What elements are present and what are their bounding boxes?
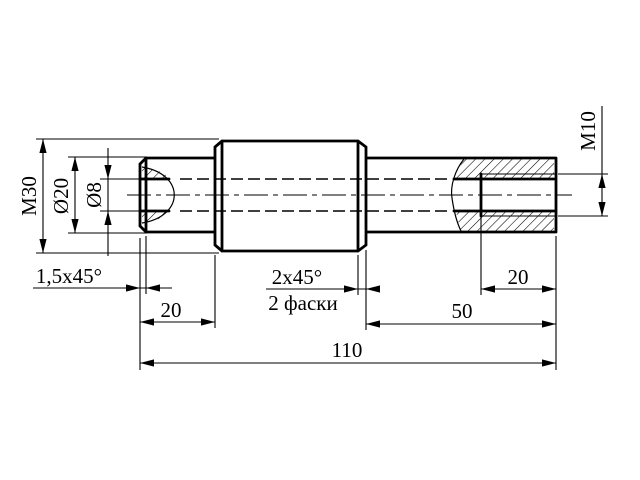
- part-outline: [140, 141, 556, 251]
- arrow-d20-top: [71, 157, 78, 171]
- dim-label-m10: M10: [576, 111, 600, 151]
- arrow-chamfer-left-b: [146, 284, 160, 291]
- dim-label-chamfer-left: 1,5x45°: [36, 264, 102, 288]
- arrow-m30-bottom: [39, 239, 46, 253]
- hatch-right-bottom: [456, 211, 554, 231]
- shaft-technical-drawing: M30 Ø20 Ø8 M10 1,5x45° 2x45° 2 фаски 20 …: [0, 0, 640, 480]
- arrow-holedepth-right: [542, 285, 556, 292]
- arrow-d20-bottom: [71, 219, 78, 233]
- dim-label-d20: Ø20: [49, 178, 73, 214]
- arrow-m10-top: [598, 174, 605, 188]
- hatch-right-top: [456, 159, 554, 179]
- arrow-chamfer-mid-a: [344, 285, 358, 292]
- arrow-holedepth-left: [481, 285, 495, 292]
- dim-label-m30: M30: [17, 176, 41, 216]
- arrow-len20-left: [140, 318, 154, 325]
- arrow-d8-bottom: [104, 211, 111, 225]
- arrow-len50-left: [366, 320, 380, 327]
- arrow-chamfer-left-a: [126, 284, 140, 291]
- arrow-len20-right: [201, 318, 215, 325]
- dim-label-len50: 50: [452, 299, 473, 323]
- dim-label-chamfer-mid: 2x45°: [272, 265, 322, 289]
- drawing-canvas: M30 Ø20 Ø8 M10 1,5x45° 2x45° 2 фаски 20 …: [0, 0, 640, 480]
- arrow-len110-left: [140, 359, 154, 366]
- dim-label-len20-hole: 20: [508, 265, 529, 289]
- arrow-m10-bottom: [598, 202, 605, 216]
- dim-label-len20-left: 20: [161, 298, 182, 322]
- arrow-len50-right: [542, 320, 556, 327]
- arrow-chamfer-mid-b: [366, 285, 380, 292]
- dimension-lines: [33, 106, 602, 363]
- dim-label-chamfer-note: 2 фаски: [268, 291, 337, 315]
- arrow-d8-top: [104, 165, 111, 179]
- dim-label-d8: Ø8: [82, 182, 106, 208]
- arrow-m30-top: [39, 139, 46, 153]
- dim-label-len110: 110: [332, 338, 363, 362]
- arrow-len110-right: [542, 359, 556, 366]
